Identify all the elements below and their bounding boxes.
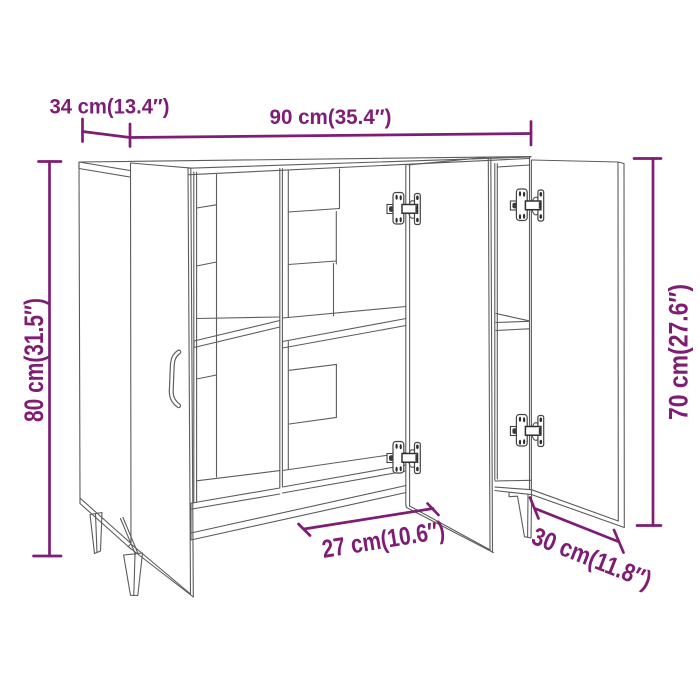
svg-text:70 cm(27.6″): 70 cm(27.6″) — [664, 284, 694, 420]
svg-text:80 cm(31.5″): 80 cm(31.5″) — [19, 298, 49, 422]
svg-text:90 cm(35.4″): 90 cm(35.4″) — [270, 105, 392, 129]
svg-text:34 cm(13.4″): 34 cm(13.4″) — [50, 95, 170, 119]
